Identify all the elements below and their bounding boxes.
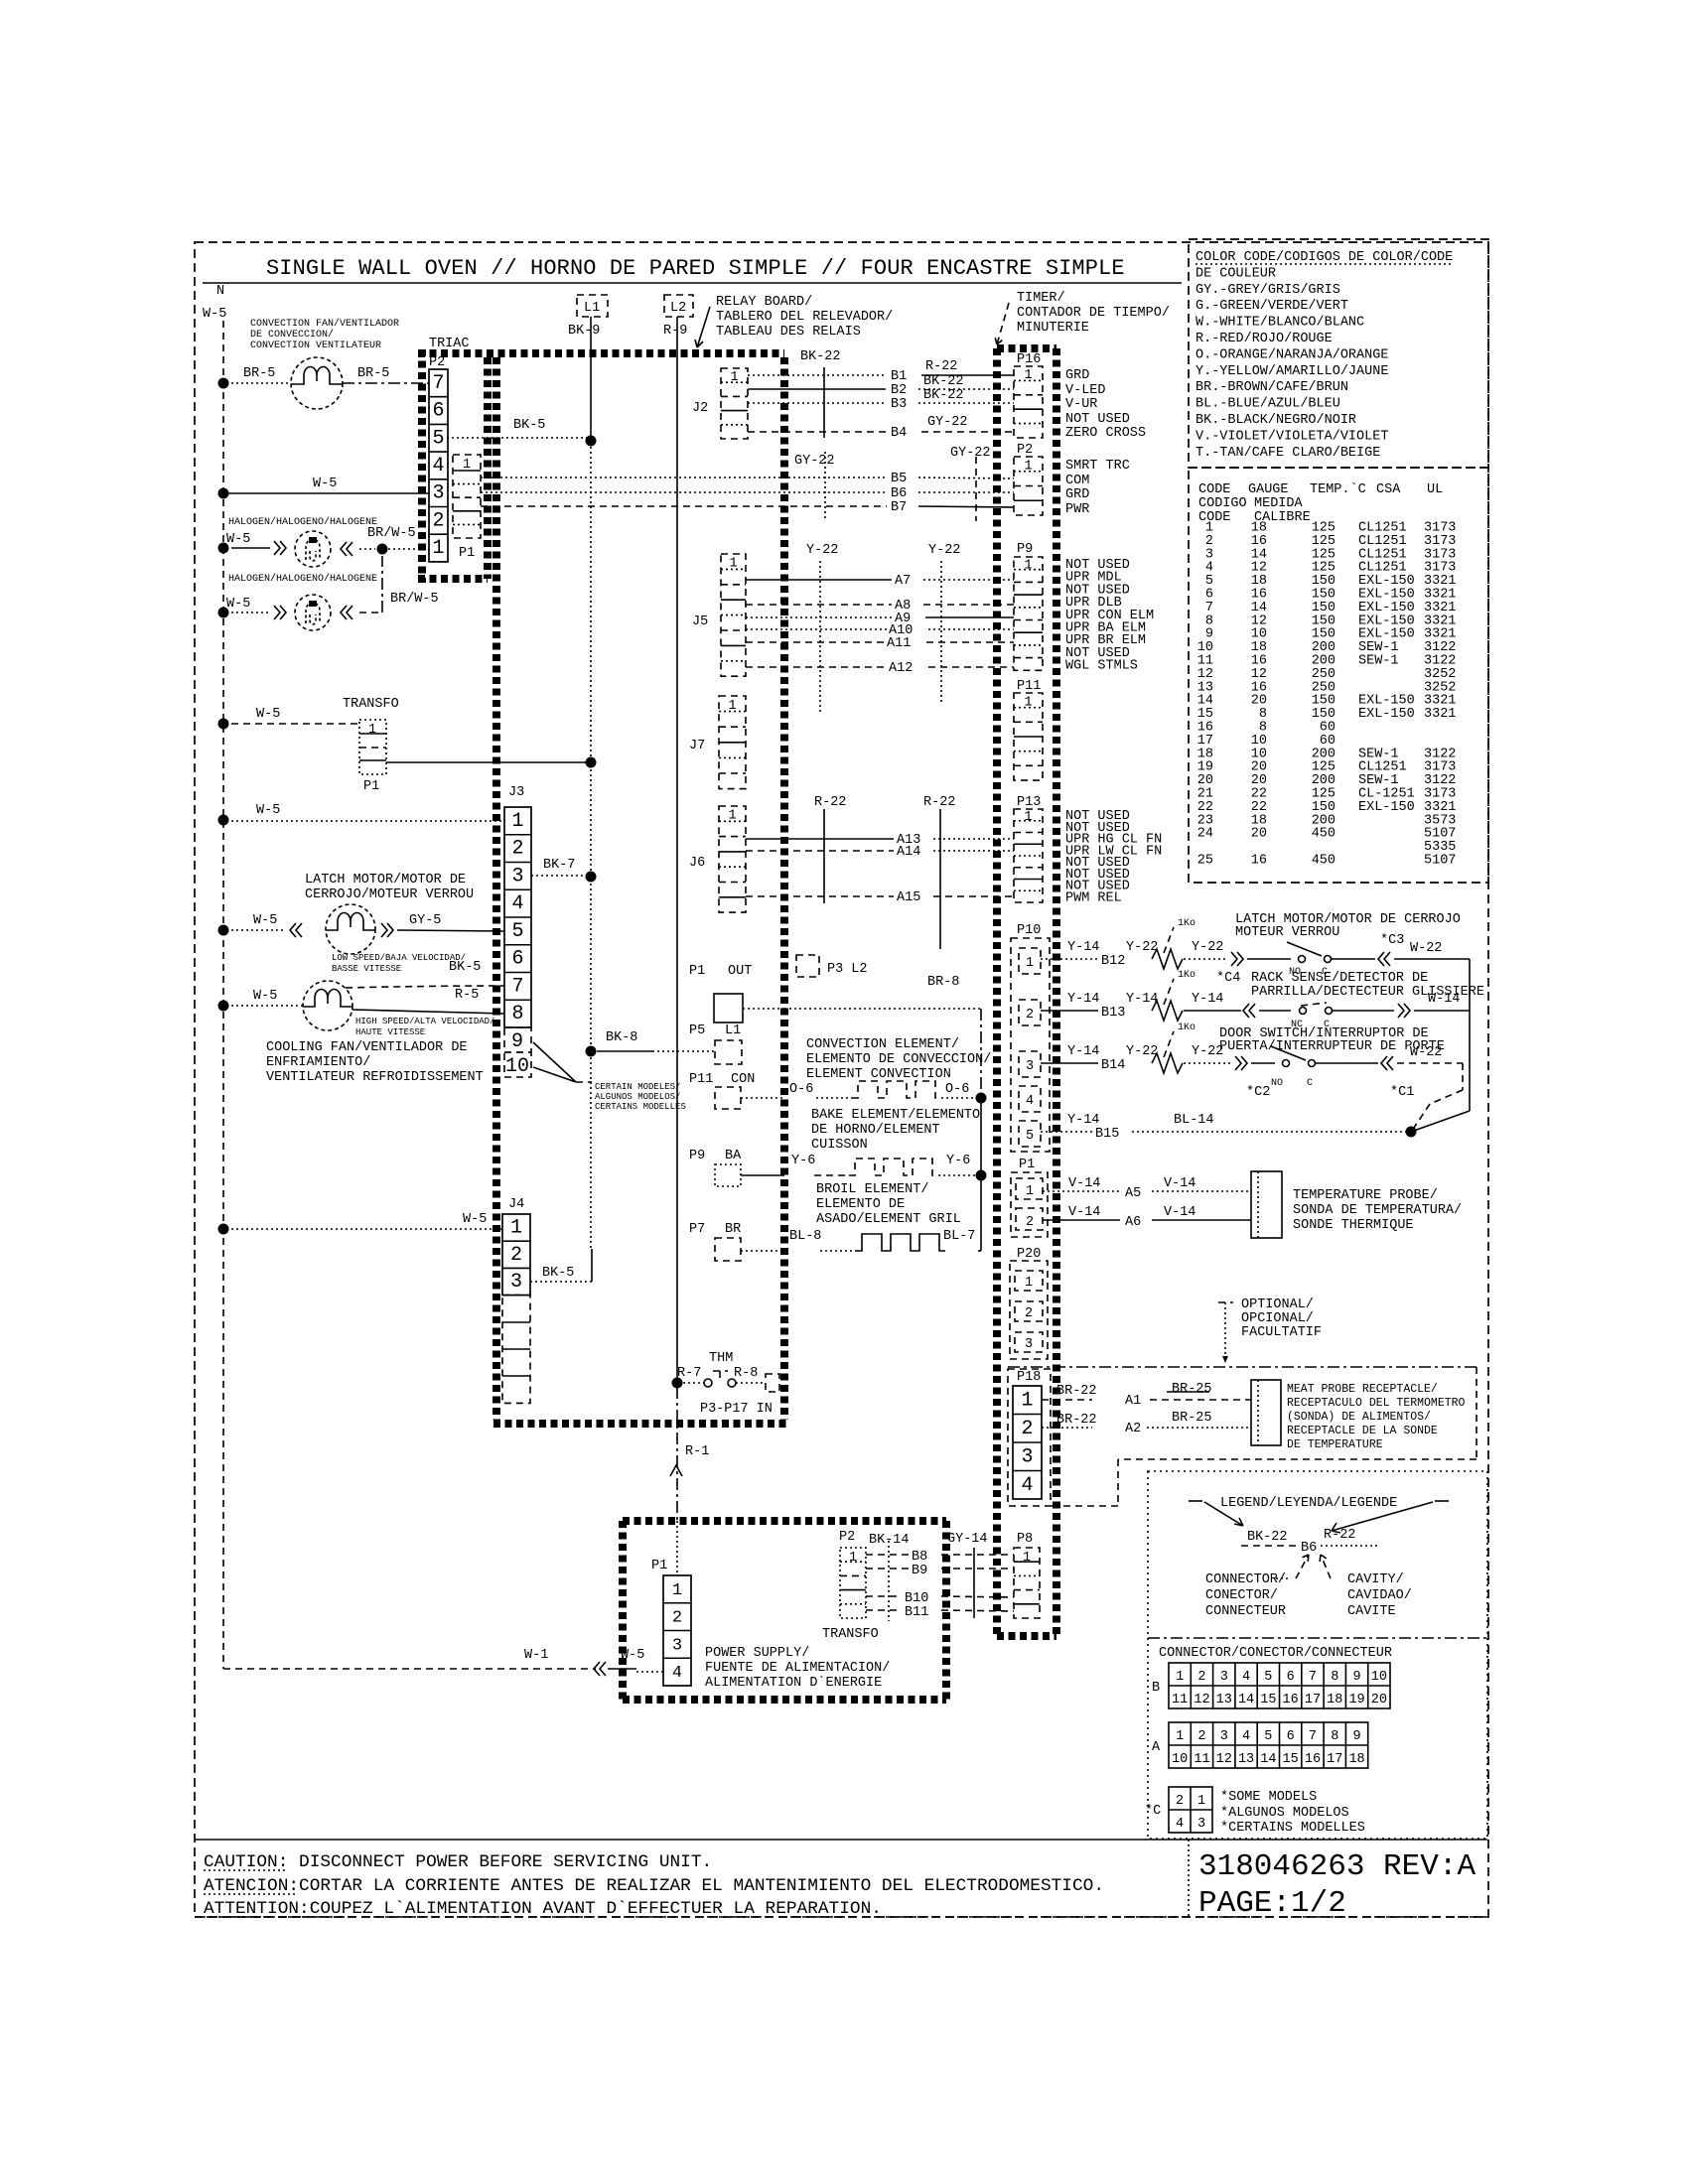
svg-text:P7: P7 <box>689 1222 705 1237</box>
svg-text:GAUGE: GAUGE <box>1248 482 1289 497</box>
svg-text:PAGE:1/2: PAGE:1/2 <box>1198 1886 1346 1921</box>
svg-text:HIGH SPEED/ALTA VELOCIDAD/: HIGH SPEED/ALTA VELOCIDAD/ <box>355 1017 494 1026</box>
svg-text:16: 16 <box>1283 1693 1299 1707</box>
svg-text:BK-5: BK-5 <box>513 418 545 433</box>
svg-text:Y.-YELLOW/AMARILLO/JAUNE: Y.-YELLOW/AMARILLO/JAUNE <box>1196 364 1388 379</box>
svg-text:W.-WHITE/BLANCO/BLANC: W.-WHITE/BLANCO/BLANC <box>1196 316 1364 331</box>
svg-text:4: 4 <box>1242 1670 1250 1685</box>
svg-text:18: 18 <box>1348 1752 1364 1767</box>
svg-text:P2: P2 <box>1017 443 1033 458</box>
svg-text:BROIL ELEMENT/: BROIL ELEMENT/ <box>816 1182 928 1197</box>
svg-text:FACULTATIF: FACULTATIF <box>1241 1325 1322 1340</box>
svg-text:19: 19 <box>1348 1693 1364 1707</box>
svg-text:ALIMENTATION D`ENERGIE: ALIMENTATION D`ENERGIE <box>705 1676 882 1691</box>
svg-text:18: 18 <box>1327 1693 1342 1707</box>
svg-text:1: 1 <box>1024 558 1032 573</box>
svg-text:B10: B10 <box>905 1591 928 1606</box>
svg-text:R-9: R-9 <box>663 324 687 339</box>
svg-text:BL-14: BL-14 <box>1174 1113 1214 1128</box>
svg-text:C: C <box>1307 1078 1313 1089</box>
svg-text:16: 16 <box>1251 854 1267 869</box>
svg-text:Y-22: Y-22 <box>928 543 960 558</box>
svg-text:W-5: W-5 <box>621 1648 644 1663</box>
svg-text:A15: A15 <box>897 890 920 905</box>
svg-text:3: 3 <box>672 1636 682 1655</box>
svg-text:RACK SENSE/DETECTOR DE: RACK SENSE/DETECTOR DE <box>1251 971 1428 986</box>
svg-text:A14: A14 <box>897 845 920 860</box>
svg-text:RECEPTACLE DE LA SONDE: RECEPTACLE DE LA SONDE <box>1287 1425 1438 1437</box>
svg-text:Y-14: Y-14 <box>1067 1044 1099 1059</box>
svg-text:6: 6 <box>1287 1729 1295 1744</box>
svg-text:POWER SUPPLY/: POWER SUPPLY/ <box>705 1646 809 1661</box>
svg-text:17: 17 <box>1327 1752 1342 1767</box>
svg-text:P1: P1 <box>363 779 379 794</box>
svg-text:SEW-1: SEW-1 <box>1358 654 1399 669</box>
svg-text:*SOME MODELS: *SOME MODELS <box>1220 1790 1317 1805</box>
svg-text:W-5: W-5 <box>253 989 277 1004</box>
svg-text:20: 20 <box>1371 1693 1387 1707</box>
svg-text:R-22: R-22 <box>1324 1528 1355 1543</box>
svg-text:CONECTOR/: CONECTOR/ <box>1205 1588 1278 1603</box>
svg-text:4: 4 <box>1242 1729 1250 1744</box>
svg-text:A2: A2 <box>1125 1422 1141 1436</box>
svg-text:BAKE ELEMENT/ELEMENTO: BAKE ELEMENT/ELEMENTO <box>811 1108 980 1123</box>
svg-text:P1: P1 <box>1019 1158 1035 1172</box>
svg-text:LOW SPEED/BAJA VELOCIDAD/: LOW SPEED/BAJA VELOCIDAD/ <box>332 953 466 963</box>
svg-text:BK-9: BK-9 <box>568 324 600 339</box>
svg-text:SONDA DE TEMPERATURA/: SONDA DE TEMPERATURA/ <box>1293 1203 1462 1218</box>
svg-text:1Ko: 1Ko <box>1178 970 1196 981</box>
svg-text:*ALGUNOS MODELOS: *ALGUNOS MODELOS <box>1220 1806 1349 1821</box>
svg-text:EXL-150: EXL-150 <box>1358 707 1415 722</box>
svg-text:CONVECTION ELEMENT/: CONVECTION ELEMENT/ <box>806 1037 959 1052</box>
svg-text:8: 8 <box>511 1003 523 1025</box>
svg-text:CODE: CODE <box>1198 510 1230 525</box>
svg-text:BK-22: BK-22 <box>923 388 964 403</box>
svg-text:BL.-BLUE/AZUL/BLEU: BL.-BLUE/AZUL/BLEU <box>1196 397 1340 412</box>
svg-text:1: 1 <box>510 1217 522 1240</box>
svg-text:TEMPERATURE PROBE/: TEMPERATURE PROBE/ <box>1293 1188 1438 1203</box>
svg-text:BR: BR <box>725 1222 741 1237</box>
svg-text:B6: B6 <box>1301 1541 1317 1556</box>
svg-text:B1: B1 <box>891 369 907 384</box>
svg-text:R-1: R-1 <box>685 1444 709 1459</box>
svg-text:THM: THM <box>709 1351 733 1366</box>
svg-text:Y-22: Y-22 <box>1126 1044 1158 1059</box>
svg-text:BL-7: BL-7 <box>943 1229 975 1244</box>
svg-text:5: 5 <box>1026 1129 1034 1144</box>
svg-text:GRD: GRD <box>1065 487 1089 502</box>
svg-text:G.-GREEN/VERDE/VERT: G.-GREEN/VERDE/VERT <box>1196 299 1348 314</box>
svg-text:1: 1 <box>1024 459 1032 474</box>
svg-text:3: 3 <box>511 865 523 887</box>
svg-text:P1: P1 <box>651 1559 667 1573</box>
svg-text:DE TEMPERATURE: DE TEMPERATURE <box>1287 1438 1383 1451</box>
svg-text:VENTILATEUR REFROIDISSEMENT: VENTILATEUR REFROIDISSEMENT <box>266 1070 484 1085</box>
svg-text:3: 3 <box>1025 1337 1033 1352</box>
svg-text:B8: B8 <box>912 1550 927 1565</box>
svg-text:CAVIDAO/: CAVIDAO/ <box>1347 1588 1412 1603</box>
svg-text:TRANSFO: TRANSFO <box>343 697 399 712</box>
svg-text:5: 5 <box>511 920 523 943</box>
svg-text:2: 2 <box>432 509 444 532</box>
svg-text:12: 12 <box>1194 1693 1209 1707</box>
svg-text:BR-5: BR-5 <box>243 366 275 381</box>
svg-text:8: 8 <box>1331 1670 1338 1685</box>
svg-text:BASSE VITESSE: BASSE VITESSE <box>332 964 401 974</box>
svg-text:(SONDA) DE ALIMENTOS/: (SONDA) DE ALIMENTOS/ <box>1287 1411 1431 1424</box>
svg-text:3: 3 <box>1220 1729 1228 1744</box>
svg-text:B13: B13 <box>1101 1006 1125 1021</box>
svg-text:W-5: W-5 <box>256 707 280 722</box>
svg-text:L1: L1 <box>725 1024 741 1038</box>
svg-text:P13: P13 <box>1017 795 1041 810</box>
svg-text:3: 3 <box>1026 1059 1034 1074</box>
svg-text:MEDIDA: MEDIDA <box>1254 496 1304 511</box>
svg-text:O-6: O-6 <box>945 1082 969 1097</box>
svg-text:GY-5: GY-5 <box>409 913 441 928</box>
svg-text:*C: *C <box>1145 1804 1161 1819</box>
svg-text:TRANSFO: TRANSFO <box>822 1627 879 1642</box>
svg-text:7: 7 <box>1309 1670 1317 1685</box>
svg-text:BK.-BLACK/NEGRO/NOIR: BK.-BLACK/NEGRO/NOIR <box>1196 413 1356 428</box>
svg-text:PWM REL: PWM REL <box>1065 890 1122 905</box>
svg-text:P11: P11 <box>1017 679 1041 694</box>
svg-text:1: 1 <box>1024 368 1032 383</box>
svg-text:V-14: V-14 <box>1164 1176 1196 1191</box>
svg-text:COM: COM <box>1065 474 1089 488</box>
svg-text:ATENCION:CORTAR LA CORRIENTE A: ATENCION:CORTAR LA CORRIENTE ANTES DE RE… <box>204 1876 1104 1896</box>
svg-text:11: 11 <box>1194 1752 1209 1767</box>
svg-text:P3 L2: P3 L2 <box>827 962 868 977</box>
svg-text:3: 3 <box>1021 1445 1033 1468</box>
svg-text:NOT USED: NOT USED <box>1065 412 1130 427</box>
svg-text:OPTIONAL/: OPTIONAL/ <box>1241 1297 1314 1312</box>
svg-text:CUISSON: CUISSON <box>811 1138 868 1153</box>
svg-text:ELEMENTO DE: ELEMENTO DE <box>816 1197 905 1212</box>
svg-text:V.-VIOLET/VIOLETA/VIOLET: V.-VIOLET/VIOLETA/VIOLET <box>1196 429 1388 444</box>
svg-text:Y-14: Y-14 <box>1067 992 1099 1007</box>
svg-text:BA: BA <box>725 1149 742 1163</box>
svg-text:4: 4 <box>1026 1094 1034 1109</box>
svg-text:R-22: R-22 <box>814 795 846 810</box>
svg-text:CONNECTEUR: CONNECTEUR <box>1205 1604 1286 1619</box>
svg-text:TRIAC: TRIAC <box>429 337 470 351</box>
svg-text:8: 8 <box>1331 1729 1338 1744</box>
svg-text:14: 14 <box>1260 1752 1276 1767</box>
svg-text:V-14: V-14 <box>1068 1205 1100 1220</box>
svg-text:*C1: *C1 <box>1390 1085 1414 1100</box>
svg-text:3: 3 <box>432 482 444 505</box>
svg-text:BR.-BROWN/CAFE/BRUN: BR.-BROWN/CAFE/BRUN <box>1196 380 1348 395</box>
svg-text:BR-8: BR-8 <box>927 975 959 990</box>
svg-text:1: 1 <box>1026 956 1034 971</box>
svg-text:1: 1 <box>849 1551 857 1566</box>
svg-text:Y-6: Y-6 <box>791 1154 815 1168</box>
svg-text:*CERTAINS MODELLES: *CERTAINS MODELLES <box>1220 1821 1365 1836</box>
svg-text:J7: J7 <box>689 739 705 753</box>
svg-text:Y-22: Y-22 <box>1126 940 1158 955</box>
svg-text:V-UR: V-UR <box>1065 397 1097 412</box>
svg-text:318046263 REV:A: 318046263 REV:A <box>1198 1849 1476 1884</box>
svg-text:B11: B11 <box>905 1605 928 1620</box>
svg-text:P5: P5 <box>689 1024 705 1038</box>
svg-text:O-6: O-6 <box>789 1082 813 1097</box>
svg-text:ELEMENT CONVECTION: ELEMENT CONVECTION <box>806 1067 951 1082</box>
svg-text:2: 2 <box>1021 1418 1033 1440</box>
svg-text:J6: J6 <box>689 856 705 871</box>
svg-text:2: 2 <box>1176 1794 1184 1809</box>
svg-text:GY-14: GY-14 <box>947 1532 988 1547</box>
svg-text:MOTEUR VERROU: MOTEUR VERROU <box>1235 925 1339 940</box>
svg-text:2: 2 <box>1026 1215 1034 1230</box>
svg-text:R-7: R-7 <box>677 1366 701 1381</box>
svg-text:*C4: *C4 <box>1216 971 1240 986</box>
svg-text:W-1: W-1 <box>524 1648 548 1663</box>
svg-text:N: N <box>216 284 224 299</box>
svg-text:450: 450 <box>1312 827 1336 842</box>
svg-text:450: 450 <box>1312 854 1336 869</box>
svg-text:6: 6 <box>1287 1670 1295 1685</box>
svg-text:DE CONVECCION/: DE CONVECCION/ <box>250 329 334 341</box>
svg-text:10: 10 <box>1172 1752 1188 1767</box>
svg-text:15: 15 <box>1260 1693 1276 1707</box>
svg-text:B12: B12 <box>1101 954 1125 969</box>
svg-text:1: 1 <box>1176 1670 1184 1685</box>
svg-text:EXL-150: EXL-150 <box>1358 800 1415 815</box>
svg-text:2: 2 <box>510 1244 522 1267</box>
svg-text:ATTENTION:COUPEZ L`ALIMENTATIO: ATTENTION:COUPEZ L`ALIMENTATION AVANT D`… <box>204 1899 882 1919</box>
svg-text:CAVITY/: CAVITY/ <box>1347 1572 1404 1587</box>
svg-text:4: 4 <box>1021 1474 1033 1497</box>
svg-text:NO: NO <box>1271 1078 1283 1089</box>
svg-text:2: 2 <box>1197 1729 1205 1744</box>
svg-text:B14: B14 <box>1101 1058 1125 1073</box>
svg-text:1: 1 <box>511 810 523 833</box>
svg-text:BK-5: BK-5 <box>449 960 481 975</box>
svg-text:COOLING FAN/VENTILADOR DE: COOLING FAN/VENTILADOR DE <box>266 1040 468 1055</box>
svg-text:3: 3 <box>510 1271 522 1294</box>
svg-text:1Ko: 1Ko <box>1178 918 1196 929</box>
svg-text:1: 1 <box>672 1581 682 1600</box>
svg-text:A: A <box>1152 1740 1161 1755</box>
svg-text:A11: A11 <box>887 636 911 651</box>
svg-text:CONNECTOR/CONECTOR/CONNECTEUR: CONNECTOR/CONECTOR/CONNECTEUR <box>1159 1646 1392 1661</box>
svg-text:A1: A1 <box>1125 1394 1141 1409</box>
svg-text:TEMP.`C: TEMP.`C <box>1310 482 1366 497</box>
svg-text:J4: J4 <box>508 1197 524 1212</box>
svg-text:4: 4 <box>432 455 444 478</box>
svg-text:J3: J3 <box>508 785 524 800</box>
svg-text:CODE: CODE <box>1198 482 1230 497</box>
svg-text:P2: P2 <box>839 1530 855 1545</box>
svg-text:R-8: R-8 <box>734 1366 758 1381</box>
svg-text:CONNECTOR/: CONNECTOR/ <box>1205 1572 1286 1587</box>
svg-text:TIMER/: TIMER/ <box>1017 291 1065 306</box>
svg-text:J2: J2 <box>692 401 708 416</box>
svg-text:L1: L1 <box>584 301 600 316</box>
svg-text:SONDE THERMIQUE: SONDE THERMIQUE <box>1293 1218 1414 1233</box>
svg-text:UL: UL <box>1427 482 1443 497</box>
svg-text:BK-5: BK-5 <box>542 1266 574 1281</box>
svg-text:16: 16 <box>1305 1752 1321 1767</box>
svg-text:1: 1 <box>730 370 738 385</box>
svg-text:CERTAINS MODELLES: CERTAINS MODELLES <box>595 1102 686 1112</box>
svg-text:Y-22: Y-22 <box>1192 940 1223 955</box>
svg-text:1: 1 <box>1025 1276 1033 1291</box>
svg-text:6: 6 <box>511 948 523 971</box>
svg-text:CAVITE: CAVITE <box>1347 1604 1396 1619</box>
svg-text:1: 1 <box>1023 1551 1031 1566</box>
svg-text:W-5: W-5 <box>256 803 280 818</box>
svg-text:PWR: PWR <box>1065 502 1089 517</box>
svg-text:1Ko: 1Ko <box>1178 1023 1196 1033</box>
svg-text:W-5: W-5 <box>226 597 250 612</box>
svg-text:W-5: W-5 <box>313 477 337 491</box>
svg-text:CAUTION: DISCONNECT POWER BEFO: CAUTION: DISCONNECT POWER BEFORE SERVICI… <box>204 1852 712 1872</box>
svg-text:CODIGO: CODIGO <box>1198 496 1247 511</box>
svg-text:LATCH MOTOR/MOTOR DE: LATCH MOTOR/MOTOR DE <box>305 873 466 887</box>
svg-text:W-5: W-5 <box>203 307 226 322</box>
svg-text:*C3: *C3 <box>1380 933 1404 948</box>
svg-text:ASADO/ELEMENT GRIL: ASADO/ELEMENT GRIL <box>816 1212 961 1227</box>
svg-text:TABLERO DEL RELEVADOR/: TABLERO DEL RELEVADOR/ <box>716 310 893 325</box>
svg-text:ALGUNOS MODELOS/: ALGUNOS MODELOS/ <box>595 1092 680 1102</box>
svg-text:W-5: W-5 <box>253 913 277 928</box>
svg-text:WGL STMLS: WGL STMLS <box>1065 659 1138 674</box>
svg-text:MEAT PROBE RECEPTACLE/: MEAT PROBE RECEPTACLE/ <box>1287 1383 1438 1396</box>
svg-text:BR-25: BR-25 <box>1172 1411 1212 1426</box>
svg-text:SMRT TRC: SMRT TRC <box>1065 459 1130 474</box>
svg-text:FUENTE DE ALIMENTACION/: FUENTE DE ALIMENTACION/ <box>705 1661 890 1676</box>
svg-text:1: 1 <box>1021 1389 1033 1412</box>
svg-text:BR-5: BR-5 <box>357 366 389 381</box>
svg-text:1: 1 <box>1024 695 1032 710</box>
svg-text:1: 1 <box>1026 1184 1034 1199</box>
svg-text:GRD: GRD <box>1065 368 1089 383</box>
svg-text:RELAY BOARD/: RELAY BOARD/ <box>716 295 812 310</box>
svg-text:P9: P9 <box>1017 542 1033 557</box>
svg-text:10: 10 <box>1371 1670 1387 1685</box>
svg-text:1: 1 <box>728 699 736 714</box>
svg-text:BK-22: BK-22 <box>800 349 841 364</box>
svg-text:GY-22: GY-22 <box>927 415 968 430</box>
svg-text:V-LED: V-LED <box>1065 383 1106 398</box>
svg-text:14: 14 <box>1238 1693 1254 1707</box>
svg-text:A5: A5 <box>1125 1186 1141 1201</box>
svg-text:3: 3 <box>1197 1817 1205 1832</box>
svg-text:5: 5 <box>1264 1670 1272 1685</box>
svg-text:*C2: *C2 <box>1246 1085 1270 1100</box>
svg-text:Y-22: Y-22 <box>1192 1044 1223 1059</box>
svg-text:ELEMENTO DE CONVECCION/: ELEMENTO DE CONVECCION/ <box>806 1052 991 1067</box>
svg-text:P1: P1 <box>459 546 475 561</box>
svg-text:B6: B6 <box>891 486 907 501</box>
svg-text:13: 13 <box>1216 1693 1232 1707</box>
svg-text:9: 9 <box>511 1030 523 1053</box>
svg-text:15: 15 <box>1283 1752 1299 1767</box>
svg-text:A7: A7 <box>895 574 911 589</box>
svg-text:2: 2 <box>1197 1670 1205 1685</box>
svg-text:OPCIONAL/: OPCIONAL/ <box>1241 1311 1314 1326</box>
svg-text:P16: P16 <box>1017 352 1041 367</box>
svg-text:Y-14: Y-14 <box>1067 940 1099 955</box>
svg-text:3321: 3321 <box>1424 707 1456 722</box>
svg-text:Y-14: Y-14 <box>1067 1113 1099 1128</box>
svg-text:TABLEAU DES RELAIS: TABLEAU DES RELAIS <box>716 325 861 340</box>
svg-text:B9: B9 <box>912 1564 927 1578</box>
svg-text:DE COULEUR: DE COULEUR <box>1196 266 1276 281</box>
svg-text:11: 11 <box>1172 1693 1188 1707</box>
svg-text:CERROJO/MOTEUR VERROU: CERROJO/MOTEUR VERROU <box>305 887 474 902</box>
svg-text:LEGEND/LEYENDA/LEGENDE: LEGEND/LEYENDA/LEGENDE <box>1220 1496 1397 1511</box>
svg-text:P3-P17 IN: P3-P17 IN <box>700 1402 773 1417</box>
svg-text:1: 1 <box>368 723 376 738</box>
svg-text:2: 2 <box>511 838 523 861</box>
svg-text:9: 9 <box>1352 1729 1360 1744</box>
svg-text:7: 7 <box>1309 1729 1317 1744</box>
svg-text:J5: J5 <box>692 614 708 629</box>
svg-text:BR/W-5: BR/W-5 <box>367 526 416 541</box>
svg-text:COLOR CODE/CODIGOS DE COLOR/CO: COLOR CODE/CODIGOS DE COLOR/CODE <box>1196 250 1453 265</box>
svg-text:BK-8: BK-8 <box>606 1030 637 1045</box>
svg-text:1: 1 <box>1176 1729 1184 1744</box>
svg-text:12: 12 <box>1216 1752 1232 1767</box>
svg-text:RECEPTACULO DEL TERMOMETRO: RECEPTACULO DEL TERMOMETRO <box>1287 1397 1466 1410</box>
svg-text:L2: L2 <box>670 301 686 316</box>
svg-text:HAUTE VITESSE: HAUTE VITESSE <box>355 1027 425 1037</box>
svg-text:P8: P8 <box>1017 1532 1033 1547</box>
svg-text:W-5: W-5 <box>226 532 250 547</box>
svg-text:P9: P9 <box>689 1149 705 1163</box>
svg-text:BR-22: BR-22 <box>1056 1413 1097 1428</box>
svg-text:ZERO CROSS: ZERO CROSS <box>1065 426 1146 441</box>
svg-text:A6: A6 <box>1125 1215 1141 1230</box>
svg-text:W-22: W-22 <box>1410 1045 1442 1060</box>
svg-text:20: 20 <box>1251 827 1267 842</box>
svg-text:Y-22: Y-22 <box>806 543 838 558</box>
svg-text:BK-22: BK-22 <box>923 374 964 389</box>
svg-text:BR-25: BR-25 <box>1172 1382 1212 1397</box>
svg-text:HALOGEN/HALOGENO/HALOGENE: HALOGEN/HALOGENO/HALOGENE <box>228 516 377 528</box>
svg-text:GY-22: GY-22 <box>950 446 991 461</box>
svg-text:2: 2 <box>1026 1008 1034 1023</box>
svg-text:DE HORNO/ELEMENT: DE HORNO/ELEMENT <box>811 1123 940 1138</box>
svg-text:R-5: R-5 <box>455 988 479 1003</box>
svg-text:B15: B15 <box>1095 1127 1119 1142</box>
svg-text:SINGLE WALL OVEN // HORNO DE P: SINGLE WALL OVEN // HORNO DE PARED SIMPL… <box>266 256 1125 281</box>
svg-text:O.-ORANGE/NARANJA/ORANGE: O.-ORANGE/NARANJA/ORANGE <box>1196 347 1388 362</box>
svg-text:OUT: OUT <box>728 964 752 979</box>
svg-text:CONVECTION FAN/VENTILADOR: CONVECTION FAN/VENTILADOR <box>250 318 399 330</box>
svg-text:7: 7 <box>432 372 444 395</box>
svg-text:1: 1 <box>432 537 444 560</box>
svg-text:4: 4 <box>1176 1817 1184 1832</box>
svg-text:10: 10 <box>505 1055 529 1078</box>
svg-text:CONVECTION VENTILATEUR: CONVECTION VENTILATEUR <box>250 341 381 351</box>
svg-text:1: 1 <box>1024 810 1032 825</box>
svg-text:4: 4 <box>672 1664 682 1683</box>
svg-text:1: 1 <box>729 557 737 572</box>
svg-text:BK-22: BK-22 <box>1247 1530 1288 1545</box>
svg-text:ENFRIAMIENTO/: ENFRIAMIENTO/ <box>266 1055 370 1070</box>
svg-text:24: 24 <box>1197 827 1213 842</box>
svg-text:CON: CON <box>731 1072 755 1087</box>
svg-text:A12: A12 <box>889 661 913 676</box>
svg-text:1: 1 <box>728 809 736 824</box>
svg-text:B5: B5 <box>891 472 907 486</box>
svg-text:4: 4 <box>511 892 523 915</box>
